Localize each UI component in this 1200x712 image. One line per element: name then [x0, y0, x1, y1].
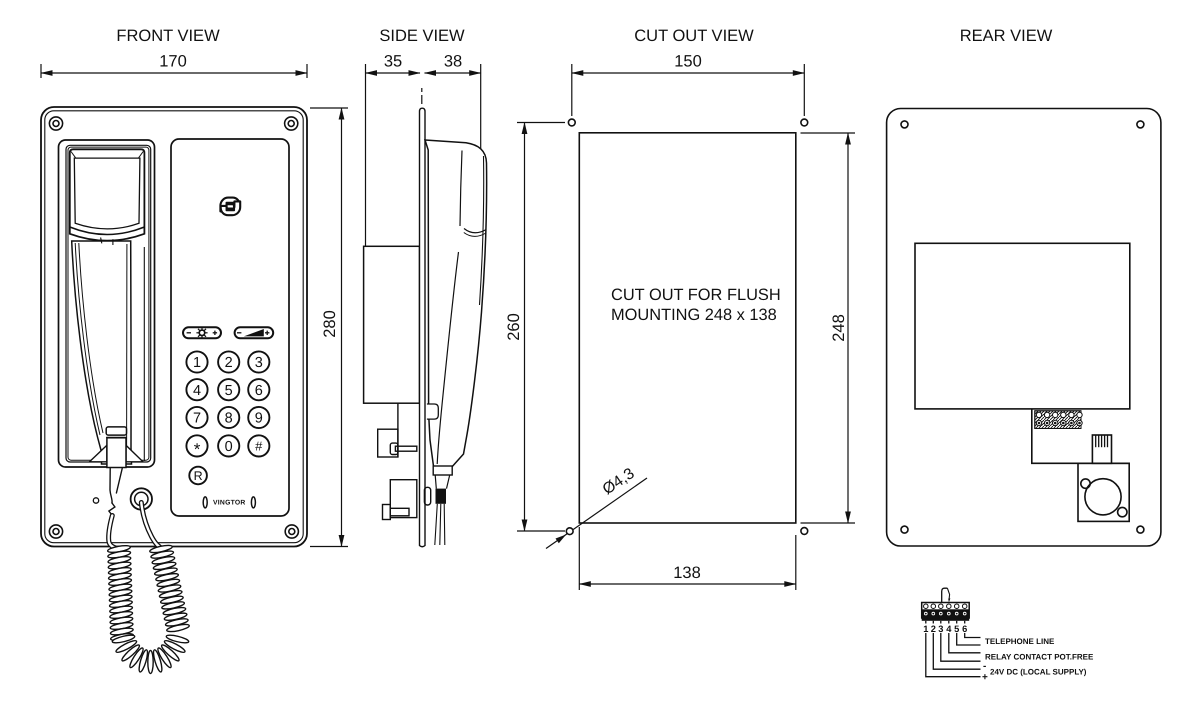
svg-text:TELEPHONE LINE: TELEPHONE LINE — [985, 637, 1055, 646]
svg-text:SIDE VIEW: SIDE VIEW — [379, 27, 465, 45]
svg-text:280: 280 — [321, 310, 339, 338]
svg-text:*: * — [194, 440, 201, 459]
svg-text:150: 150 — [674, 53, 702, 71]
svg-text:4: 4 — [193, 383, 201, 399]
svg-text:38: 38 — [444, 53, 462, 71]
svg-text:-: - — [983, 661, 986, 672]
svg-text:REAR VIEW: REAR VIEW — [960, 27, 1053, 45]
svg-text:6: 6 — [255, 383, 263, 399]
svg-text:CUT OUT FOR FLUSH: CUT OUT FOR FLUSH — [611, 286, 781, 304]
svg-text:R: R — [194, 469, 203, 483]
svg-text:138: 138 — [673, 564, 701, 582]
svg-text:9: 9 — [255, 411, 263, 427]
svg-text:248: 248 — [830, 314, 848, 342]
svg-text:35: 35 — [384, 53, 402, 71]
svg-text:Ø4,3: Ø4,3 — [600, 465, 638, 498]
svg-text:0: 0 — [225, 439, 233, 455]
svg-text:4: 4 — [946, 624, 952, 634]
svg-text:5: 5 — [954, 624, 959, 634]
svg-text:3: 3 — [255, 355, 263, 371]
svg-text:RELAY CONTACT POT.FREE: RELAY CONTACT POT.FREE — [985, 653, 1094, 662]
svg-text:260: 260 — [505, 313, 523, 341]
svg-text:#: # — [255, 439, 263, 454]
svg-text:24V DC (LOCAL SUPPLY): 24V DC (LOCAL SUPPLY) — [990, 668, 1087, 677]
svg-text:+: + — [982, 672, 988, 683]
svg-text:1: 1 — [193, 355, 201, 371]
svg-text:8: 8 — [225, 411, 233, 427]
svg-text:2: 2 — [225, 355, 233, 371]
svg-text:2: 2 — [931, 624, 936, 634]
svg-text:FRONT VIEW: FRONT VIEW — [116, 27, 220, 45]
svg-text:1: 1 — [923, 624, 928, 634]
svg-text:MOUNTING 248 x 138: MOUNTING 248 x 138 — [611, 306, 777, 324]
svg-text:7: 7 — [193, 411, 201, 427]
svg-text:170: 170 — [159, 53, 187, 71]
svg-text:5: 5 — [225, 383, 233, 399]
svg-text:CUT OUT VIEW: CUT OUT VIEW — [634, 27, 754, 45]
svg-text:6: 6 — [962, 624, 967, 634]
svg-text:VINGTOR: VINGTOR — [213, 499, 246, 506]
svg-text:3: 3 — [938, 624, 943, 634]
